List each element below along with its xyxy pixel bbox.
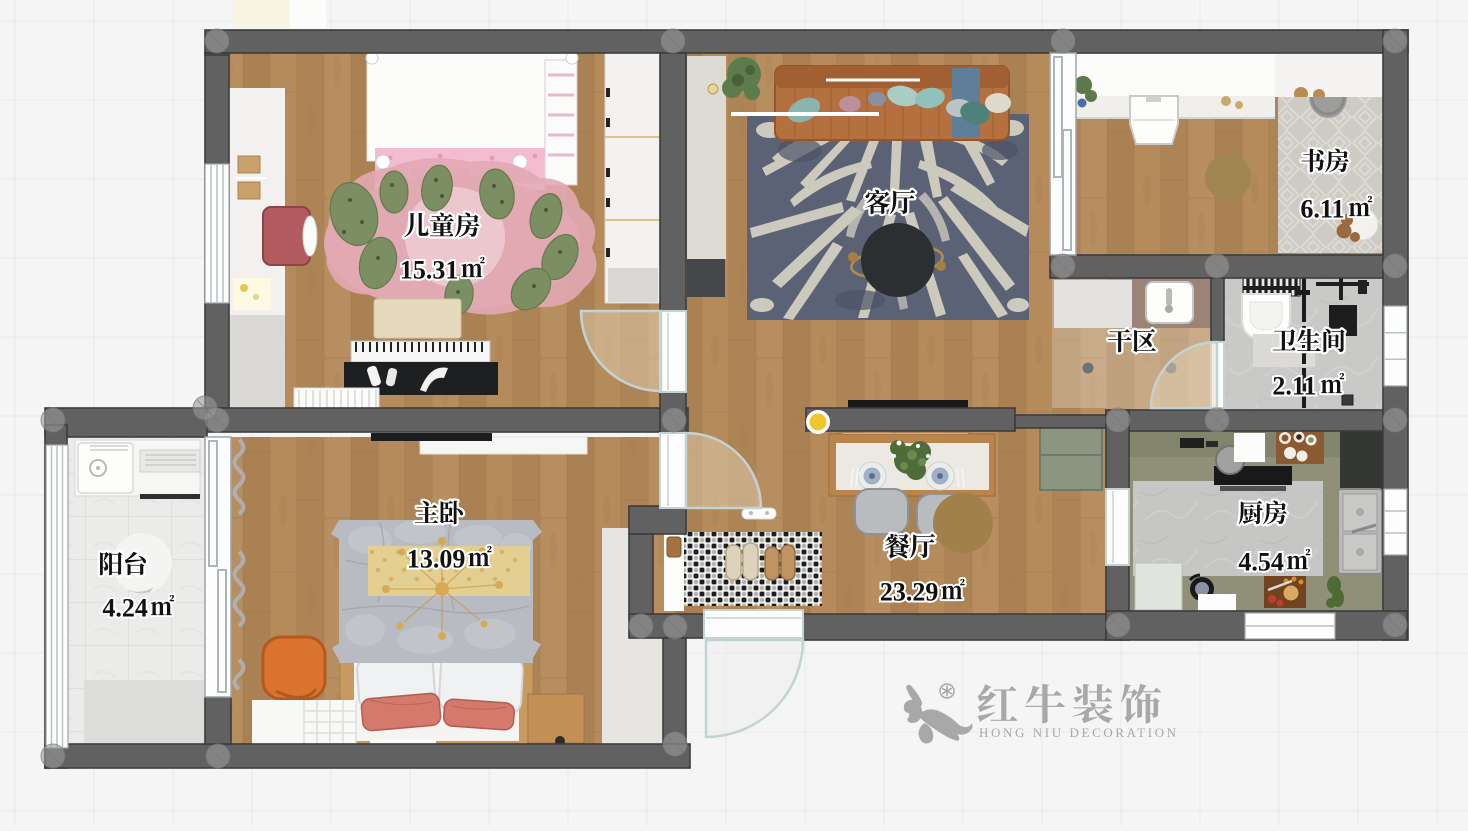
svg-text:HONG NIU DECORATION: HONG NIU DECORATION (979, 725, 1179, 740)
svg-text:6.11: 6.11 (1300, 195, 1344, 224)
svg-text:23.29: 23.29 (880, 578, 939, 607)
svg-text:15.31: 15.31 (400, 256, 459, 285)
svg-text:4.24: 4.24 (102, 594, 147, 623)
svg-text:2.11: 2.11 (1272, 372, 1316, 401)
svg-text:13.09: 13.09 (407, 545, 466, 574)
svg-text:4.54: 4.54 (1238, 548, 1284, 577)
